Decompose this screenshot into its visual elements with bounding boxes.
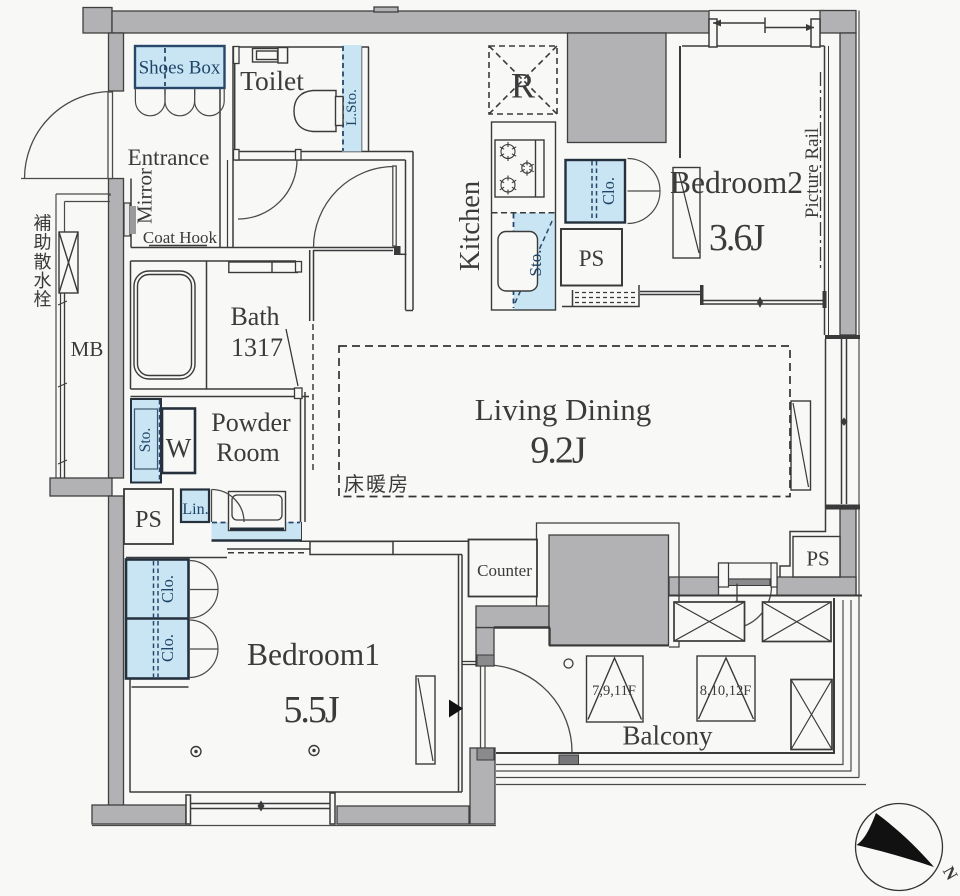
svg-text:9.2J: 9.2J <box>530 430 586 472</box>
svg-text:床暖房: 床暖房 <box>344 473 410 496</box>
svg-text:W: W <box>166 433 192 463</box>
svg-text:Lin.: Lin. <box>182 501 208 518</box>
svg-text:助: 助 <box>34 233 52 253</box>
svg-text:Picture Rail: Picture Rail <box>802 128 823 218</box>
svg-text:R: R <box>511 66 535 106</box>
svg-text:Sto.: Sto. <box>526 250 545 277</box>
svg-text:Clo.: Clo. <box>599 177 618 205</box>
svg-text:1317: 1317 <box>231 333 283 362</box>
svg-text:Clo.: Clo. <box>158 634 177 662</box>
svg-text:PS: PS <box>806 547 829 571</box>
svg-text:散: 散 <box>34 252 52 272</box>
svg-text:8,10,12F: 8,10,12F <box>700 683 752 699</box>
svg-text:Powder: Powder <box>211 408 291 437</box>
svg-text:Counter: Counter <box>477 561 532 580</box>
svg-text:Coat Hook: Coat Hook <box>143 228 218 247</box>
svg-text:Living Dining: Living Dining <box>475 392 652 427</box>
svg-text:Bedroom1: Bedroom1 <box>247 637 380 672</box>
svg-text:栓: 栓 <box>34 290 52 310</box>
svg-text:Shoes Box: Shoes Box <box>139 58 221 79</box>
svg-text:Sto.: Sto. <box>137 428 154 453</box>
svg-text:Mirror: Mirror <box>133 168 157 224</box>
svg-text:PS: PS <box>135 507 162 533</box>
svg-text:Balcony: Balcony <box>623 721 713 751</box>
svg-text:Clo.: Clo. <box>158 575 177 603</box>
svg-text:Bath: Bath <box>230 302 279 331</box>
svg-text:Bedroom2: Bedroom2 <box>670 165 803 200</box>
svg-text:PS: PS <box>579 246 605 271</box>
svg-text:補: 補 <box>34 214 52 234</box>
svg-text:Entrance: Entrance <box>128 145 210 170</box>
svg-text:Kitchen: Kitchen <box>455 181 486 271</box>
svg-text:Room: Room <box>216 438 280 467</box>
svg-text:MB: MB <box>71 337 104 361</box>
svg-text:3.6J: 3.6J <box>709 217 765 259</box>
svg-text:Toilet: Toilet <box>240 65 304 96</box>
svg-text:7,9,11F: 7,9,11F <box>592 683 636 699</box>
svg-text:5.5J: 5.5J <box>283 689 339 731</box>
svg-text:L.Sto.: L.Sto. <box>344 89 360 126</box>
svg-text:水: 水 <box>34 271 52 291</box>
